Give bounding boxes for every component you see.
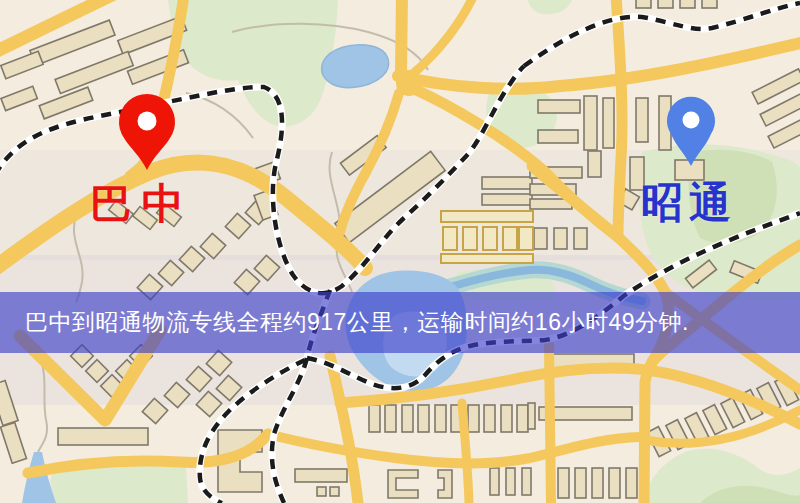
map-screenshot: 巴中 昭通 巴中到昭通物流专线全程约917公里，运输时间约16小时49分钟.: [0, 0, 800, 503]
road-junction: [396, 70, 422, 96]
destination-city-label: 昭通: [641, 175, 737, 231]
route-info-text: 巴中到昭通物流专线全程约917公里，运输时间约16小时49分钟.: [0, 307, 689, 338]
map-canvas[interactable]: [0, 0, 800, 503]
origin-city-label: 巴中: [90, 176, 194, 232]
building-complex: [441, 211, 533, 263]
route-info-banner: 巴中到昭通物流专线全程约917公里，运输时间约16小时49分钟.: [0, 292, 800, 353]
